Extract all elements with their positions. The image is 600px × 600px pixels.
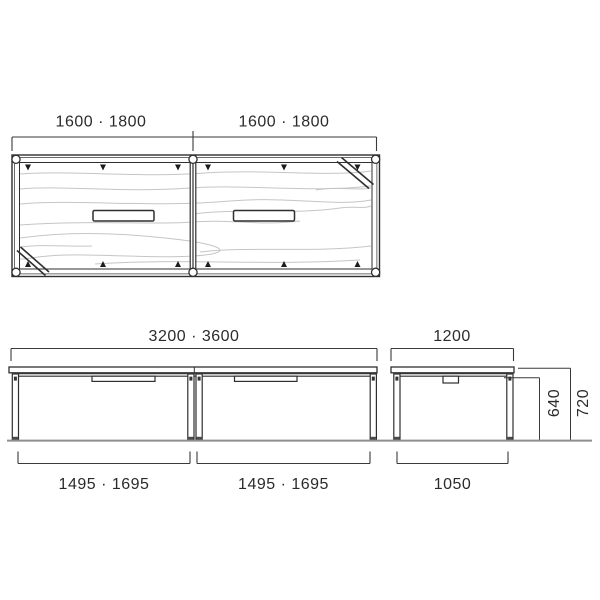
front-overall-width-label: 3200 · 3600: [149, 328, 240, 345]
table-leg: [507, 374, 513, 440]
plan-width-dimension: [12, 131, 377, 151]
front-legs: [12, 374, 376, 440]
technical-drawing-page: 1600 · 1800 1600 · 1800: [0, 0, 600, 600]
centre-divider-rail: [190, 156, 196, 277]
side-view: 1200 640: [391, 328, 592, 493]
front-tabletop: [9, 367, 377, 373]
table-leg: [12, 374, 18, 440]
side-legs: [394, 374, 513, 440]
table-leg: [394, 374, 400, 440]
side-tabletop: [391, 367, 514, 373]
side-leg-span-label: 1050: [434, 476, 472, 493]
leg-circle: [372, 155, 380, 163]
diagonal-brace-bottom-left: [17, 247, 49, 276]
leg-circle: [12, 155, 20, 163]
front-width-dimension: [11, 349, 377, 362]
side-depth-label: 1200: [433, 328, 471, 345]
table-leg: [188, 374, 194, 440]
leg-circle: [12, 268, 20, 276]
front-leg-span-right-label: 1495 · 1695: [238, 476, 329, 493]
plan-view: 1600 · 1800 1600 · 1800: [12, 114, 380, 277]
front-apron: [19, 374, 371, 376]
table-leg: [370, 374, 376, 440]
side-cable-tray: [443, 376, 459, 383]
cable-slot: [234, 211, 295, 222]
cable-tray: [92, 376, 155, 381]
leg-circle: [189, 268, 197, 276]
plan-section-right-label: 1600 · 1800: [239, 114, 330, 131]
leg-feet: [394, 437, 512, 440]
front-leg-span-dimensions: [18, 452, 370, 464]
overall-height-label: 720: [575, 389, 592, 417]
table-leg: [196, 374, 202, 440]
side-leg-span-dimension: [397, 452, 508, 464]
cable-tray: [235, 376, 298, 381]
leg-circle: [372, 268, 380, 276]
front-leg-span-left-label: 1495 · 1695: [59, 476, 150, 493]
underframe-height-label: 640: [546, 389, 563, 417]
front-view: 3200 · 3600: [9, 328, 377, 493]
table-dimension-drawing: 1600 · 1800 1600 · 1800: [0, 0, 600, 600]
leg-circle: [189, 155, 197, 163]
plan-section-left-label: 1600 · 1800: [56, 114, 147, 131]
cable-slot: [93, 211, 154, 222]
side-depth-dimension: [391, 349, 514, 362]
